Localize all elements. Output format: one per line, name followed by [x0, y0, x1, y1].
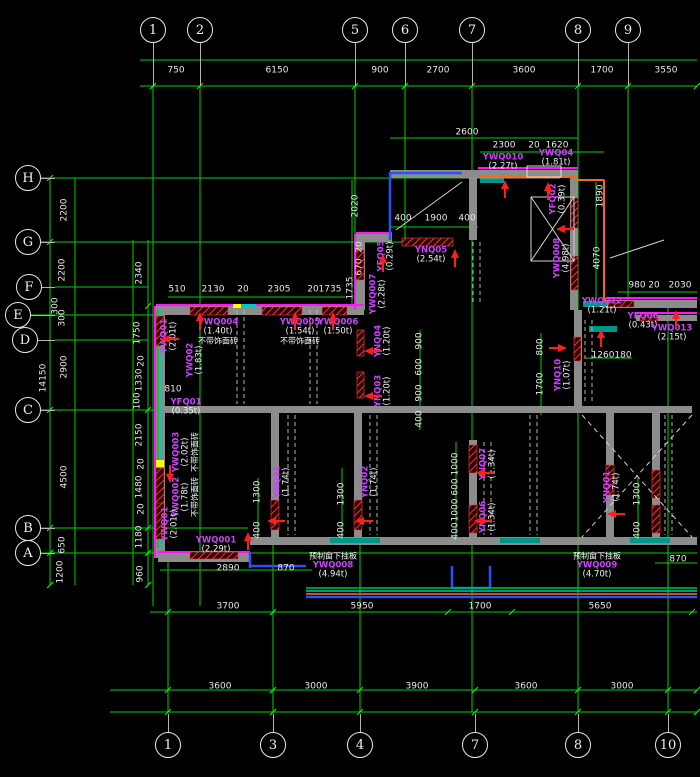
wall-panel-label: YNQ05(2.54t) [415, 247, 447, 266]
arrow-head [166, 474, 174, 483]
grid-bubble: H [15, 165, 41, 191]
panel-weight: (2.54t) [415, 256, 447, 265]
red-arrow-icon [597, 329, 605, 347]
red-arrow-icon [672, 310, 680, 328]
panel-weight: (1.07t) [564, 359, 573, 391]
bubble-leader [41, 178, 55, 179]
bubble-leader [200, 43, 201, 86]
bubble-leader [38, 340, 55, 341]
dimension-text: 1300 [254, 481, 263, 504]
dimension-text: 20 [138, 503, 147, 514]
dimension-text: 4500 [61, 466, 70, 489]
arrow-head [558, 344, 567, 352]
grid-bubble: 6 [392, 17, 418, 43]
dimension-text: 20 [356, 241, 365, 252]
dimension-text: 3550 [655, 67, 678, 76]
bubble-leader [472, 43, 473, 86]
wall-panel-label: 预制窗下挂板YWQ009(4.70t) [573, 552, 621, 579]
red-arrow-icon [501, 180, 509, 198]
bubble-leader [355, 43, 356, 86]
dimension-text: 20 [138, 458, 147, 469]
dimension-text: 400 [452, 522, 461, 539]
dimension-text: 180 [614, 352, 631, 361]
grid-bubble: 3 [260, 732, 286, 758]
arrow-head [244, 532, 252, 541]
arrow-tail [485, 472, 494, 474]
red-arrow-icon [291, 312, 299, 330]
arrow-head [451, 249, 459, 258]
red-arrow-icon [196, 312, 204, 330]
bubble-leader [578, 714, 579, 733]
red-arrow-icon [355, 517, 373, 525]
dimension-text: 750 [167, 67, 184, 76]
dimension-text: 600 [416, 358, 425, 375]
dimension-text: 3600 [209, 683, 232, 692]
arrow-tail [382, 263, 384, 272]
arrow-head [474, 517, 483, 525]
dimension-text: 100 [134, 392, 143, 409]
dimension-text: 400 [254, 521, 263, 538]
grid-bubble: 8 [565, 17, 591, 43]
bubble-leader [41, 553, 55, 554]
arrow-head [161, 335, 170, 343]
dimension-text: 2150 [136, 424, 145, 447]
panel-weight: (4.94t) [309, 570, 357, 579]
dimension-text: 1700 [537, 373, 546, 396]
dimension-text: 1330 [136, 369, 145, 392]
grid-bubble: 9 [615, 17, 641, 43]
panel-note: 不带饰面砖 [280, 337, 321, 346]
wall-panel-label: YWQ010(2.27t) [483, 154, 524, 173]
dimension-text: 2305 [268, 286, 291, 295]
dimension-text: 400 [394, 215, 411, 224]
dimension-text: 1900 [425, 215, 448, 224]
wall-panel-label: YWQ008(4.98t) [554, 238, 573, 279]
dimension-text: 6150 [266, 67, 289, 76]
dimension-text: 2600 [456, 129, 479, 138]
arrow-head [291, 312, 299, 321]
arrow-tail [483, 520, 492, 522]
panel-weight: (1.74t) [283, 466, 292, 498]
panel-weight: (2.28t) [379, 274, 388, 315]
panel-weight: (1.81t) [539, 159, 574, 168]
arrow-tail [616, 513, 625, 515]
wall-panel-label: YNQ02(1.74t) [362, 466, 381, 498]
panel-weight: (0.29t) [387, 240, 396, 271]
red-arrow-icon [161, 335, 179, 343]
wall-panel-label: YWQ001(2.29t) [196, 537, 237, 556]
grid-bubble: G [15, 229, 41, 255]
red-arrow-icon [166, 465, 174, 483]
dimension-text: 400 [416, 410, 425, 427]
panel-weight: (2.15t) [652, 334, 693, 343]
wall-panel-label: YWQ02(1.83t) [187, 343, 206, 378]
red-arrow-icon [329, 312, 337, 330]
bubble-leader [31, 315, 55, 316]
dimension-text: 20 [307, 286, 318, 295]
arrow-tail [276, 520, 285, 522]
grid-bubble: F [16, 274, 42, 300]
panel-note: 不带饰面砖 [191, 477, 200, 518]
grid-bubble: 7 [459, 17, 485, 43]
panel-weight: (2.29t) [196, 546, 237, 555]
bubble-leader [405, 43, 406, 86]
dimension-text: 400 [634, 521, 643, 538]
red-arrow-icon [544, 182, 552, 200]
arrow-tail [373, 395, 382, 397]
dimension-text: 5950 [351, 603, 374, 612]
grid-bubble: C [15, 397, 41, 423]
panel-weight: (1.20t) [384, 375, 393, 407]
dimension-text: 3000 [305, 683, 328, 692]
dimension-text: 2700 [427, 67, 450, 76]
arrow-head [476, 469, 485, 477]
cad-floor-plan: 12567891347810HGFEDCBA750615090027003600… [0, 0, 700, 777]
red-arrow-icon [474, 517, 492, 525]
red-arrow-icon [476, 469, 494, 477]
dimension-text: 810 [164, 386, 181, 395]
arrow-tail [675, 319, 677, 328]
arrow-head [597, 329, 605, 338]
dimension-text: 980 [628, 282, 645, 291]
dimension-text: 400 [458, 215, 475, 224]
arrow-tail [199, 321, 201, 330]
dimension-text: 870 [669, 556, 686, 565]
red-arrow-icon [556, 225, 574, 233]
arrow-head [329, 312, 337, 321]
arrow-tail [169, 465, 171, 474]
red-arrow-icon [364, 347, 382, 355]
wall-panel-label: YFQ01(0.35t) [170, 399, 201, 418]
dimension-text: 1750 [134, 322, 143, 345]
panel-weight: (4.70t) [573, 570, 621, 579]
red-arrow-icon [267, 517, 285, 525]
bubble-leader [360, 714, 361, 733]
dimension-text: 1480 [136, 476, 145, 499]
grid-bubble: 1 [155, 732, 181, 758]
wall-panel-label: YNQ01(1.74t) [274, 466, 293, 498]
dimension-text: 1700 [469, 603, 492, 612]
panel-note: 不带饰面砖 [191, 432, 200, 473]
grid-bubble: 2 [187, 17, 213, 43]
dimension-text: 3700 [217, 603, 240, 612]
dimension-text: 1200 [57, 561, 66, 584]
dimension-text: 2030 [669, 282, 692, 291]
grid-bubble: 8 [565, 732, 591, 758]
panel-weight: (1.21t) [582, 307, 623, 316]
panel-weight: (1.83t) [196, 343, 205, 378]
panel-weight: (0.39t) [559, 183, 568, 214]
wall-panel-label: YWQ007(2.28t) [370, 274, 389, 315]
wall-panel-label: YWQ012(1.21t) [582, 298, 623, 317]
dimension-text: 1735 [319, 286, 342, 295]
wall-panel-label: YWQ01(2.01t) [162, 507, 181, 542]
dimension-text: 900 [416, 384, 425, 401]
wall-panel-label: YWQ005(1.54t)不带饰面砖 [280, 318, 321, 345]
dimension-text: 3000 [611, 683, 634, 692]
dimension-text: 2130 [202, 286, 225, 295]
grid-bubble: 4 [347, 732, 373, 758]
arrow-head [196, 312, 204, 321]
arrow-tail [549, 347, 558, 349]
dimension-text: 3600 [513, 67, 536, 76]
dimension-text: 300 [59, 309, 68, 326]
dimension-text: 650 [59, 536, 68, 553]
dimension-text: 1180 [136, 526, 145, 549]
dimension-text: 2200 [59, 259, 68, 282]
arrow-tail [332, 321, 334, 330]
arrow-head [672, 310, 680, 319]
dimension-text: 2020 [352, 195, 361, 218]
red-arrow-icon [607, 510, 625, 518]
dimension-text: 800 [537, 338, 546, 355]
dimension-text: 1700 [591, 67, 614, 76]
dimension-text: 1735 [347, 277, 356, 300]
dimension-text: 4070 [594, 247, 603, 270]
grid-bubble: E [5, 302, 31, 328]
dimension-text: 900 [371, 67, 388, 76]
hatched-wall-segments [156, 198, 660, 559]
grid-bubble: 5 [342, 17, 368, 43]
panel-weight: (1.50t) [318, 328, 359, 337]
dimension-text: 1890 [597, 185, 606, 208]
dimension-text: 20 [138, 355, 147, 366]
red-arrow-icon [379, 254, 387, 272]
arrow-tail [247, 541, 249, 550]
wall-panel-label: YWQ003(2.02t)不带饰面砖 [172, 432, 199, 473]
red-arrow-icon [364, 392, 382, 400]
bubble-leader [42, 287, 55, 288]
grid-bubble: 10 [655, 732, 681, 758]
panel-weight: (4.98t) [563, 238, 572, 279]
arrow-head [364, 392, 373, 400]
arrow-tail [373, 350, 382, 352]
bubble-leader [475, 714, 476, 733]
dimension-text: 600 [452, 478, 461, 495]
arrow-tail [364, 520, 373, 522]
dimension-text: 510 [168, 286, 185, 295]
arrow-tail [565, 228, 574, 230]
bubble-leader [273, 714, 274, 733]
red-arrow-icon [244, 532, 252, 550]
arrow-tail [600, 338, 602, 347]
dimension-text: 2890 [217, 565, 240, 574]
arrow-head [267, 517, 276, 525]
wall-panel-label: YFQ02(0.39t) [550, 183, 569, 214]
grid-bubble: 7 [462, 732, 488, 758]
grid-bubble: B [15, 515, 41, 541]
panel-weight: (2.27t) [483, 163, 524, 172]
arrow-tail [294, 321, 296, 330]
drawing-geometry [0, 0, 700, 777]
dimension-text: 1000 [452, 453, 461, 476]
dimension-text: 870 [277, 565, 294, 574]
dimension-text: 960 [137, 565, 146, 582]
arrow-tail [170, 338, 179, 340]
wall-panel-label: YNQ10(1.07t) [555, 359, 574, 391]
dimension-text: 3600 [515, 683, 538, 692]
dimension-text: 1300 [338, 483, 347, 506]
dimension-text: 1260 [592, 352, 615, 361]
bubble-leader [628, 43, 629, 86]
red-arrow-icon [451, 249, 459, 267]
dimension-text: 1300 [634, 483, 643, 506]
bubble-leader [168, 714, 169, 733]
wall-panel-label: YNQ03(1.20t) [375, 375, 394, 407]
dimension-text: 20 [237, 286, 248, 295]
grid-bubble: A [15, 540, 41, 566]
bubble-leader [578, 43, 579, 86]
bubble-leader [153, 43, 154, 86]
arrow-head [556, 225, 565, 233]
arrow-head [355, 517, 364, 525]
arrow-head [501, 180, 509, 189]
panel-weight: (1.20t) [384, 325, 393, 357]
arrow-tail [504, 189, 506, 198]
dimension-text: 14150 [40, 364, 49, 393]
dimension-text: 20 [648, 282, 659, 291]
arrow-head [544, 182, 552, 191]
grid-bubble: D [12, 327, 38, 353]
red-arrow-icon [549, 344, 567, 352]
arrow-tail [454, 258, 456, 267]
dimension-text: 670 [356, 258, 365, 275]
dimension-text: 900 [416, 332, 425, 349]
arrow-tail [547, 191, 549, 200]
arrow-head [607, 510, 616, 518]
bubble-leader [668, 714, 669, 733]
panel-weight: (2.01t) [171, 507, 180, 542]
wall-panel-label: YWQ006(1.50t) [318, 319, 359, 338]
bubble-leader [41, 410, 55, 411]
bubble-leader [41, 242, 55, 243]
arrow-head [379, 254, 387, 263]
grid-bubble: 1 [140, 17, 166, 43]
dimension-text: 2900 [61, 356, 70, 379]
dimension-text: 2300 [493, 142, 516, 151]
dimension-text: 2340 [136, 262, 145, 285]
wall-panel-label: 预制窗下挂板YWQ008(4.94t) [309, 552, 357, 579]
dimension-text: 2200 [61, 199, 70, 222]
dimension-text: 400 [338, 521, 347, 538]
wall-panel-label: YWQ04(1.81t) [539, 150, 574, 169]
panel-weight: (1.74t) [371, 466, 380, 498]
dimension-text: 3900 [406, 683, 429, 692]
bubble-leader [41, 528, 55, 529]
panel-weight: (0.35t) [170, 408, 201, 417]
dimension-text: 1000 [452, 499, 461, 522]
window-blocks [156, 178, 670, 543]
wall-panel-label: YNQ01(1.74t) [604, 471, 623, 503]
arrow-head [364, 347, 373, 355]
panel-weight: (1.74t) [613, 471, 622, 503]
dimension-text: 5650 [589, 603, 612, 612]
